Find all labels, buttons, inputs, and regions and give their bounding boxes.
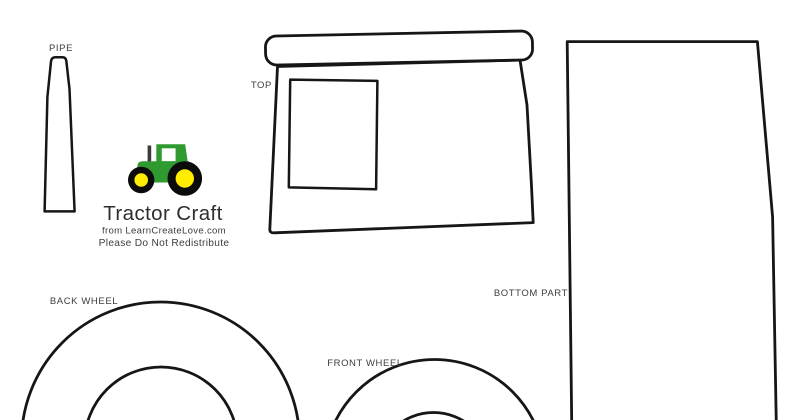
source-credit-line: from LearnCreateLove.com (102, 226, 226, 237)
top-shape-window (289, 80, 378, 190)
top-shape-roof (265, 31, 533, 65)
bottom-part-shape (567, 42, 776, 420)
front-wheel-label: FRONT WHEEL (327, 358, 403, 369)
tractor-icon (128, 144, 202, 195)
bottom-part-label: BOTTOM PART (494, 288, 568, 299)
top-label: TOP (251, 80, 272, 91)
pipe-shape (45, 57, 75, 211)
page-title: Tractor Craft (103, 202, 222, 225)
tractor-cab-window (162, 148, 176, 161)
back-wheel-label: BACK WHEEL (50, 296, 118, 307)
tractor-front-hub (134, 173, 148, 187)
redistribute-notice-line: Please Do Not Redistribute (99, 238, 230, 249)
pipe-label: PIPE (49, 43, 73, 54)
craft-template-page: PIPE TOP BOTTOM PART BACK WHEEL FRONT WH… (0, 0, 800, 420)
tractor-rear-hub (176, 169, 194, 187)
